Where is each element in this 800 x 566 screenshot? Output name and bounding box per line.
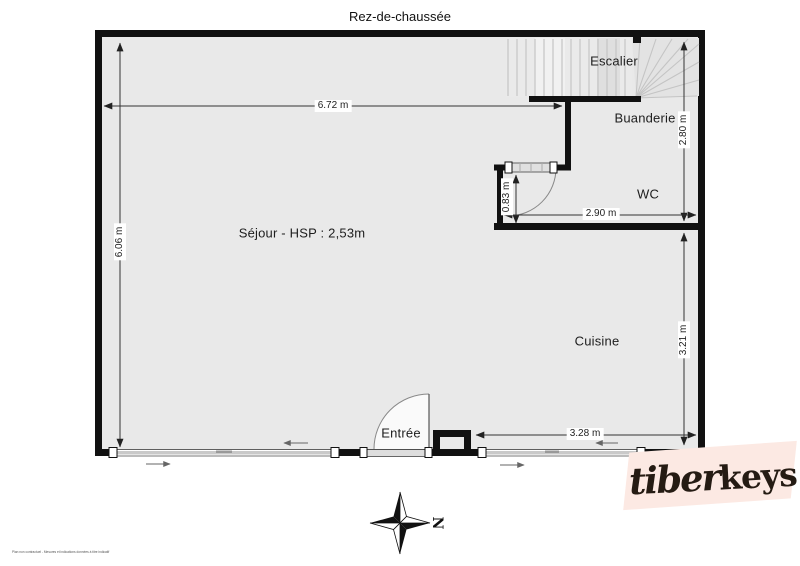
dim-cuisine-height: 3.21 m: [678, 322, 690, 359]
dim-left-height: 6.06 m: [114, 224, 126, 261]
tiberkeys-logo: tiberkeys: [627, 447, 800, 517]
dim-wc-door-width: 0.83 m: [501, 179, 513, 216]
logo-script-part: tiber: [628, 455, 720, 504]
page-title: Rez-de-chaussée: [0, 9, 800, 24]
logo-bold-part: keys: [718, 455, 798, 498]
compass-north-label: N: [429, 517, 445, 530]
room-label-entree: Entrée: [381, 426, 421, 441]
room-label-sejour: Séjour - HSP : 2,53m: [239, 226, 366, 241]
dim-right-upper-height: 2.80 m: [678, 112, 690, 149]
dim-cuisine-width: 3.28 m: [567, 428, 604, 440]
dim-sejour-width: 6.72 m: [315, 100, 352, 112]
room-label-cuisine: Cuisine: [575, 334, 620, 349]
disclaimer-text: Plan non contractuel - Mesures et indica…: [12, 550, 109, 554]
room-label-wc: WC: [637, 187, 659, 202]
compass-rose-icon: [370, 492, 430, 554]
room-label-escalier: Escalier: [590, 54, 638, 69]
room-label-buanderie: Buanderie: [614, 111, 675, 126]
floor-plan-page: Rez-de-chaussée Escalier Buanderie WC Sé…: [0, 0, 800, 566]
dim-wc-width: 2.90 m: [583, 208, 620, 220]
